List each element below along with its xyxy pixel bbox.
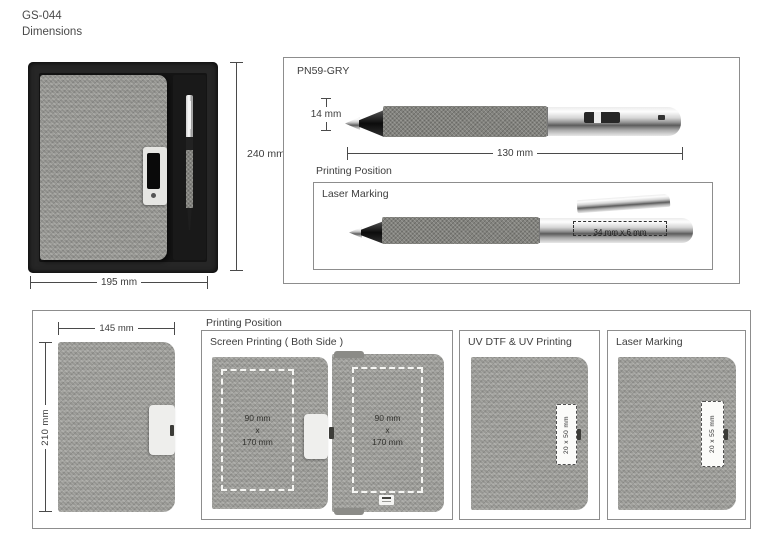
pen2-cap: 34 mm x 6 mm: [539, 218, 693, 243]
uv-print-area: 20 x 50 mm: [556, 404, 577, 465]
notebook-clasp: [143, 147, 167, 205]
pen-laser-title: Laser Marking: [322, 188, 389, 200]
clasp-pin: [151, 193, 156, 198]
brand-tag-line: [382, 501, 391, 502]
notebook-laser-knob: [724, 429, 728, 440]
notebook-reference: [58, 342, 175, 512]
pen-cap-vertical: [186, 95, 193, 137]
laser-area-label: 20 x 55 mm: [709, 415, 716, 453]
pen-in-box: [186, 95, 193, 245]
binding-flap-top: [334, 351, 364, 358]
pen-length-label: 130 mm: [493, 148, 537, 159]
header: GS-044 Dimensions: [22, 8, 82, 40]
box-width-label: 195 mm: [97, 277, 141, 288]
laser-marking-panel: Laser Marking 20 x 55 mm: [607, 330, 746, 520]
pen-laser-panel: Laser Marking 34 mm x 6 mm: [313, 182, 713, 270]
pen-panel: PN59-GRY 14 mm 130 mm Printing Position: [283, 57, 740, 284]
box-height-label: 240 mm: [247, 148, 285, 160]
pen-compartment: [173, 75, 206, 260]
pen-cap-detail: [658, 115, 665, 120]
box-width-dimension: 195 mm: [30, 276, 208, 289]
pen2-barrel: [382, 217, 539, 244]
back-area-line3: 170 mm: [372, 436, 403, 448]
product-code: GS-044: [22, 8, 82, 24]
notebook-laser: 20 x 55 mm: [618, 357, 736, 510]
gift-box: [28, 62, 218, 273]
pen-clip-slot: [584, 112, 620, 123]
pen-clip-gap: [594, 112, 601, 123]
front-area-line3: 170 mm: [242, 436, 273, 448]
spec-sheet: GS-044 Dimensions 240 mm: [0, 0, 768, 543]
notebook-width-label: 145 mm: [95, 323, 137, 334]
pen-diameter-label: 14 mm: [311, 107, 342, 122]
notebook-back: 90 mm x 170 mm: [332, 354, 444, 512]
notebook-front-clasp: [304, 414, 328, 459]
notebook-reference-knob: [170, 425, 174, 436]
notebook-height-label: 210 mm: [40, 405, 51, 450]
pen-tip-vertical: [186, 208, 193, 230]
front-area-line1: 90 mm: [245, 412, 271, 424]
back-area-line2: x: [385, 424, 389, 436]
pen-clip-vertical: [188, 101, 191, 129]
pen2-marking-area: 34 mm x 6 mm: [573, 221, 667, 236]
notebook-uv: 20 x 50 mm: [471, 357, 588, 510]
notebook-width-dimension: 145 mm: [58, 322, 175, 335]
notebook-printing-position-label: Printing Position: [206, 317, 282, 329]
front-area-line2: x: [255, 424, 259, 436]
notebook-in-box: [40, 75, 167, 260]
notebook-front: 90 mm x 170 mm: [212, 357, 328, 509]
binding-flap-bottom: [334, 508, 364, 515]
back-print-area: 90 mm x 170 mm: [352, 367, 423, 493]
page-title: Dimensions: [22, 24, 82, 40]
notebook-back-knob: [329, 427, 334, 439]
uv-area-label: 20 x 50 mm: [563, 416, 570, 454]
uv-printing-title: UV DTF & UV Printing: [468, 336, 572, 348]
pen-code-label: PN59-GRY: [297, 65, 349, 77]
front-print-area: 90 mm x 170 mm: [221, 369, 294, 491]
pen-length-dimension: 130 mm: [347, 147, 683, 160]
clasp-knob: [147, 153, 160, 189]
pen-diameter-dimension: 14 mm: [298, 98, 354, 131]
uv-printing-panel: UV DTF & UV Printing 20 x 50 mm: [459, 330, 600, 520]
pen2-clip: [577, 194, 671, 213]
pen2-cone: [361, 221, 384, 244]
pen2-tip: [349, 227, 362, 238]
brand-tag: [379, 495, 394, 505]
notebook-uv-knob: [577, 429, 581, 440]
back-area-line1: 90 mm: [375, 412, 401, 424]
brand-tag-mark: [382, 497, 391, 499]
pen-cone: [359, 110, 384, 137]
notebook-panel: 145 mm 210 mm Printing Position Screen P…: [32, 310, 751, 529]
screen-printing-title: Screen Printing ( Both Side ): [210, 336, 343, 348]
box-height-dimension: [230, 62, 243, 271]
pen2-marking-label: 34 mm x 6 mm: [594, 228, 647, 237]
notebook-height-dimension: 210 mm: [39, 342, 52, 512]
pen-cap: [547, 107, 681, 136]
laser-print-area: 20 x 55 mm: [701, 401, 724, 467]
pen-printing-position-label: Printing Position: [316, 165, 392, 177]
pen-barrel-vertical: [186, 150, 193, 208]
laser-marking-title: Laser Marking: [616, 336, 683, 348]
pen-band: [186, 137, 193, 150]
screen-printing-panel: Screen Printing ( Both Side ) 90 mm x 17…: [201, 330, 453, 520]
pen-barrel: [383, 106, 547, 137]
